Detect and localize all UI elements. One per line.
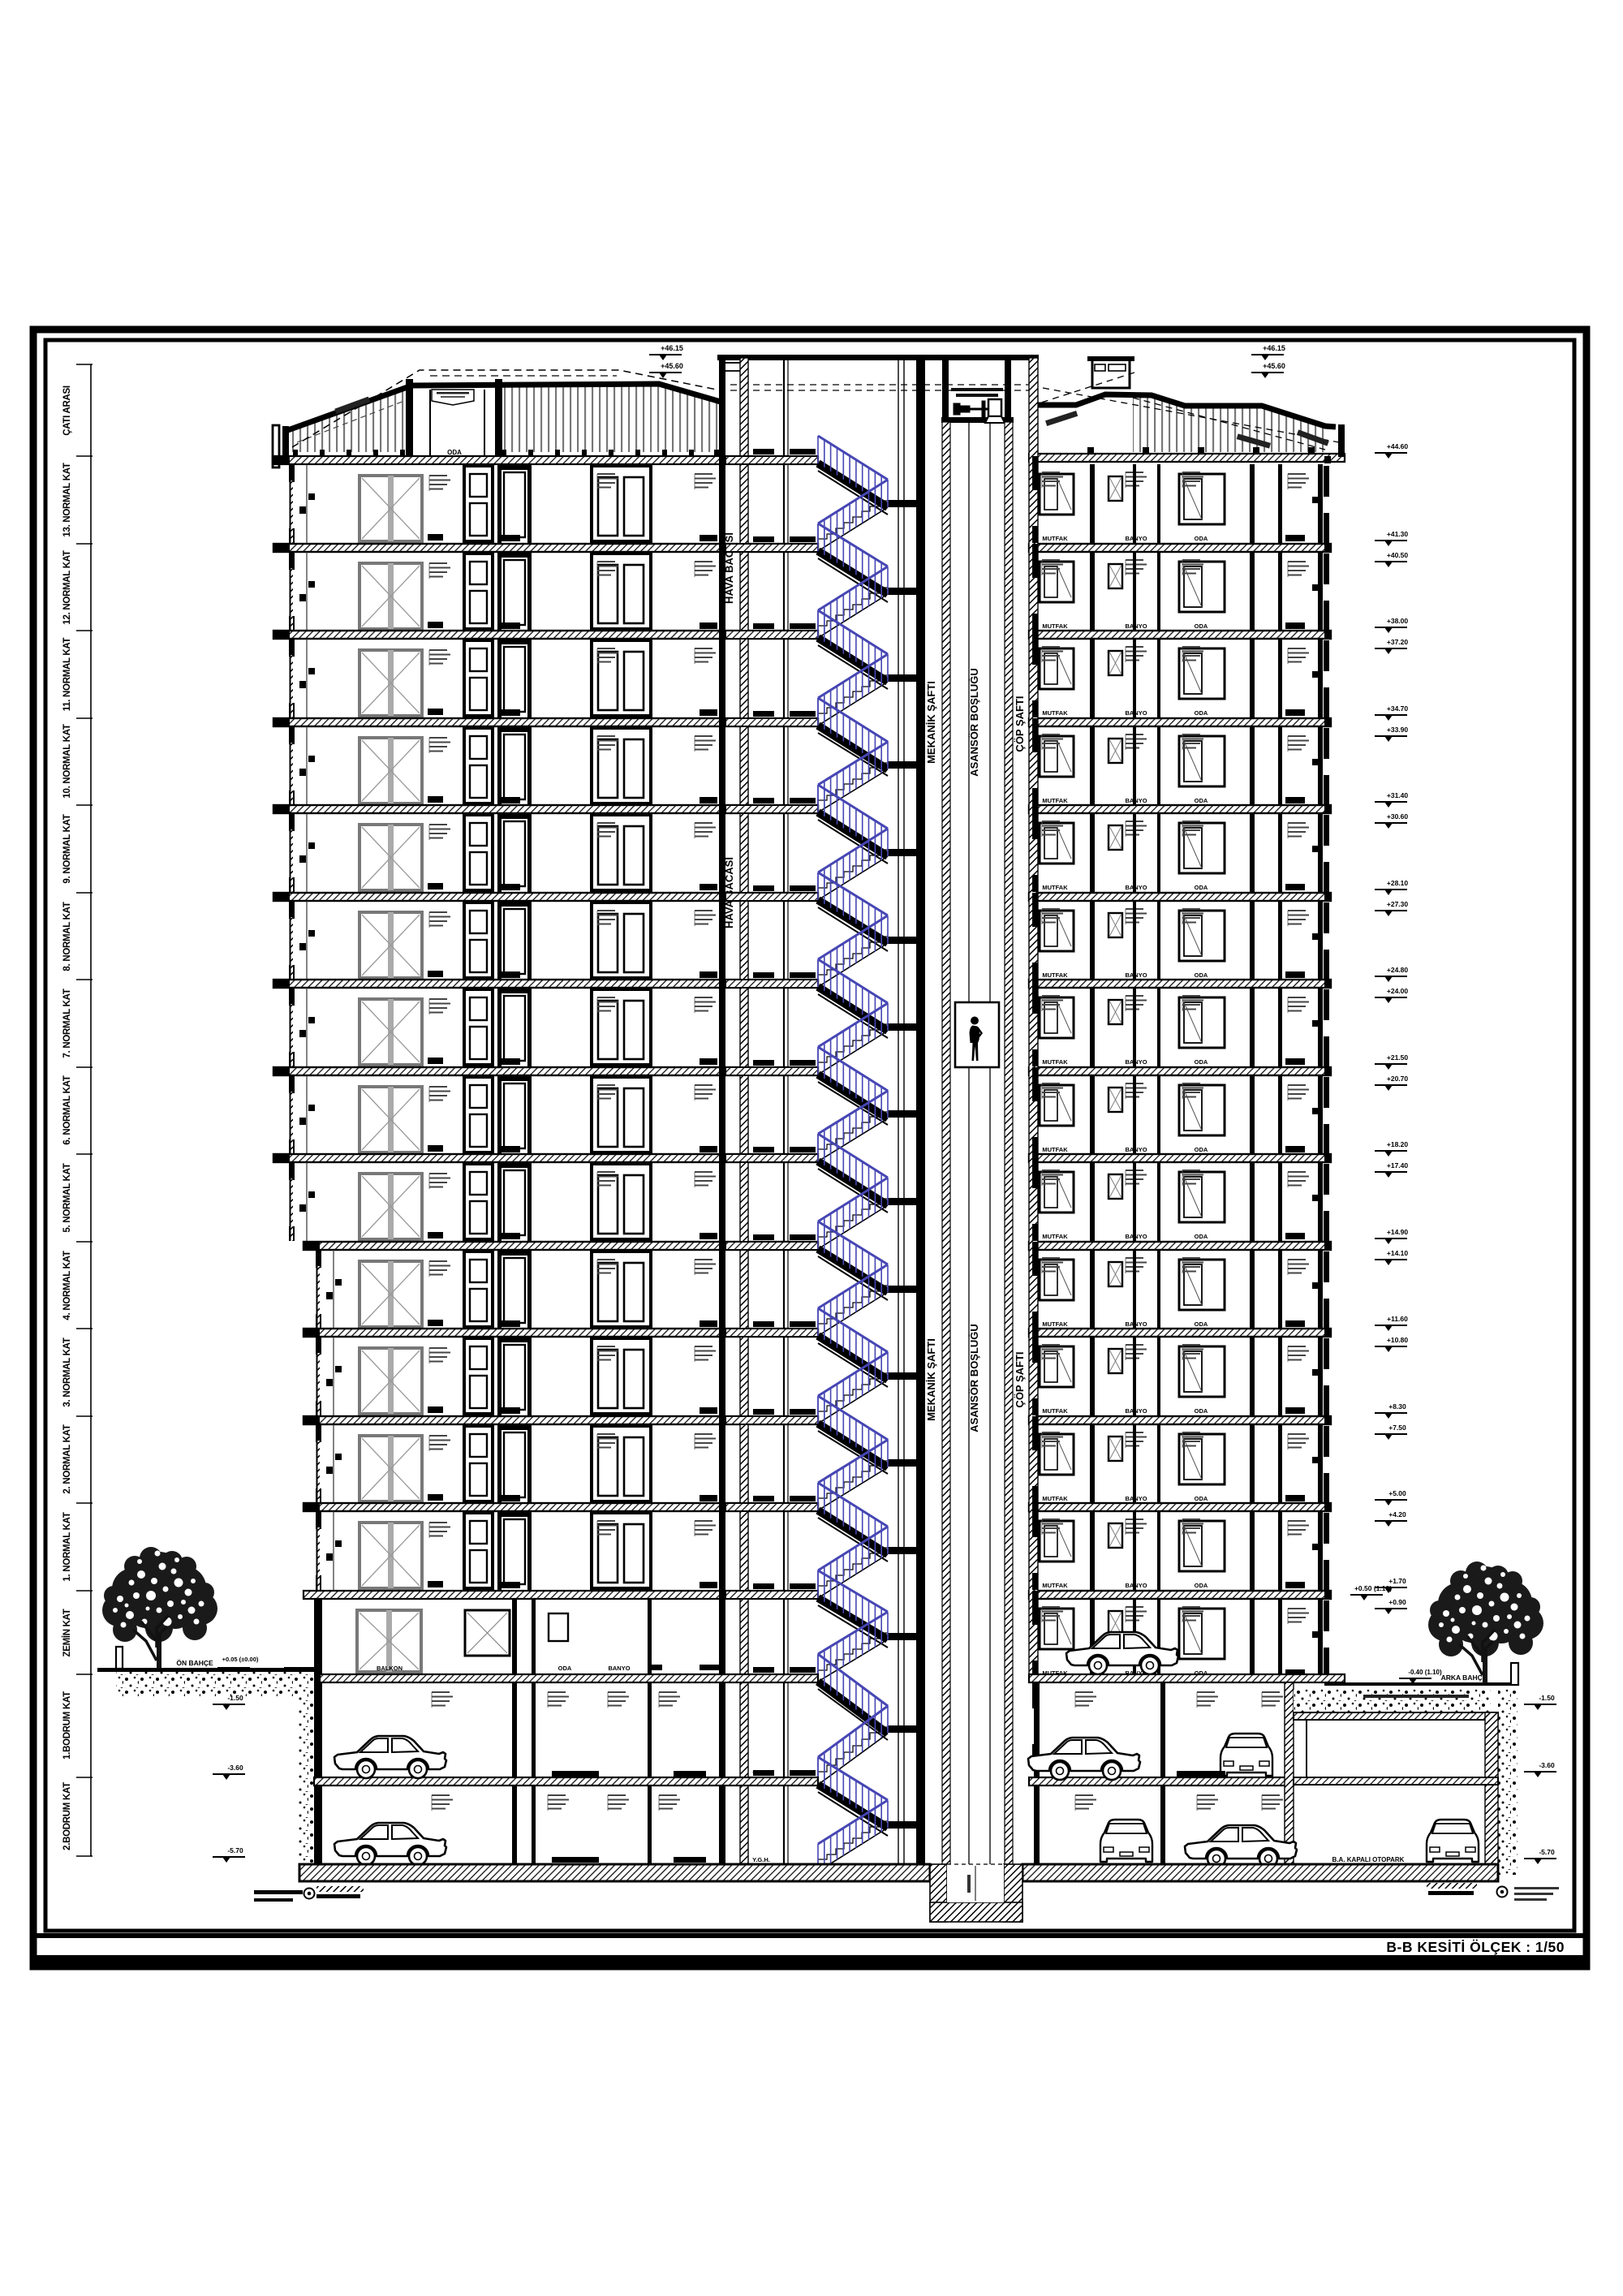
svg-text:+44.60: +44.60 xyxy=(1387,442,1409,450)
svg-text:+5.00: +5.00 xyxy=(1388,1489,1406,1497)
svg-text:+40.50: +40.50 xyxy=(1387,551,1409,559)
svg-text:+46.15: +46.15 xyxy=(1263,344,1285,352)
svg-text:4. NORMAL KAT: 4. NORMAL KAT xyxy=(62,1251,72,1320)
svg-text:+45.60: +45.60 xyxy=(661,362,683,370)
svg-text:+11.60: +11.60 xyxy=(1387,1315,1408,1323)
svg-text:+24.80: +24.80 xyxy=(1387,966,1409,974)
svg-text:13. NORMAL KAT: 13. NORMAL KAT xyxy=(62,463,72,536)
svg-text:ÇÖP ŞAFTI: ÇÖP ŞAFTI xyxy=(1014,696,1026,752)
svg-text:-5.70: -5.70 xyxy=(1539,1848,1555,1856)
svg-text:+7.50: +7.50 xyxy=(1388,1424,1406,1432)
svg-text:+37.20: +37.20 xyxy=(1387,638,1409,646)
svg-text:+14.10: +14.10 xyxy=(1387,1249,1409,1257)
svg-text:+41.30: +41.30 xyxy=(1387,530,1409,538)
svg-text:+27.30: +27.30 xyxy=(1387,900,1409,908)
svg-text:+33.90: +33.90 xyxy=(1387,726,1409,734)
svg-text:+17.40: +17.40 xyxy=(1387,1161,1409,1170)
svg-text:+30.60: +30.60 xyxy=(1387,812,1409,821)
svg-text:ÖN BAHÇE: ÖN BAHÇE xyxy=(176,1659,213,1667)
svg-text:+10.80: +10.80 xyxy=(1387,1336,1409,1344)
svg-text:-3.60: -3.60 xyxy=(227,1764,243,1772)
svg-text:-0.40 (1.10): -0.40 (1.10) xyxy=(1408,1669,1442,1676)
svg-text:+21.50: +21.50 xyxy=(1387,1053,1409,1062)
svg-text:ÇÖP ŞAFTI: ÇÖP ŞAFTI xyxy=(1014,1351,1026,1407)
svg-text:+14.90: +14.90 xyxy=(1387,1228,1409,1236)
svg-text:+0.90: +0.90 xyxy=(1388,1598,1406,1606)
svg-text:B.A. KAPALI OTOPARK: B.A. KAPALI OTOPARK xyxy=(1332,1856,1405,1863)
svg-text:Y.G.H.: Y.G.H. xyxy=(752,1770,770,1777)
svg-text:+0.05 (±0.00): +0.05 (±0.00) xyxy=(222,1656,259,1663)
svg-text:MEKANİK ŞAFTI: MEKANİK ŞAFTI xyxy=(925,1338,937,1421)
svg-text:+28.10: +28.10 xyxy=(1387,879,1409,887)
svg-text:10. NORMAL KAT: 10. NORMAL KAT xyxy=(62,724,72,798)
svg-text:ZEMİN KAT: ZEMİN KAT xyxy=(62,1609,72,1656)
svg-text:+24.00: +24.00 xyxy=(1387,987,1409,995)
svg-text:ODA: ODA xyxy=(447,449,462,456)
svg-text:ARKA BAHÇE: ARKA BAHÇE xyxy=(1441,1674,1487,1682)
svg-text:9. NORMAL KAT: 9. NORMAL KAT xyxy=(62,814,72,883)
svg-text:BANYO: BANYO xyxy=(608,1665,630,1672)
svg-text:-3.60: -3.60 xyxy=(1539,1761,1555,1769)
svg-text:+8.30: +8.30 xyxy=(1388,1402,1406,1411)
svg-text:+46.15: +46.15 xyxy=(661,344,683,352)
svg-text:+4.20: +4.20 xyxy=(1388,1510,1406,1518)
svg-text:7. NORMAL KAT: 7. NORMAL KAT xyxy=(62,989,72,1058)
svg-text:BALKON: BALKON xyxy=(377,1665,403,1672)
svg-text:+20.70: +20.70 xyxy=(1387,1075,1409,1083)
svg-text:ÇATI ARASI: ÇATI ARASI xyxy=(62,386,72,436)
svg-text:+45.60: +45.60 xyxy=(1263,362,1285,370)
svg-text:+31.40: +31.40 xyxy=(1387,791,1409,799)
svg-text:-5.70: -5.70 xyxy=(227,1846,243,1854)
svg-text:+34.70: +34.70 xyxy=(1387,704,1409,713)
svg-text:B-B KESİTİ ÖLÇEK : 1/50: B-B KESİTİ ÖLÇEK : 1/50 xyxy=(1386,1939,1565,1955)
svg-text:MEKANİK ŞAFTI: MEKANİK ŞAFTI xyxy=(925,681,937,764)
svg-text:Y.G.H.: Y.G.H. xyxy=(752,1856,770,1863)
svg-text:ASANSÖR BOŞLUĞU: ASANSÖR BOŞLUĞU xyxy=(968,668,980,777)
svg-text:5. NORMAL KAT: 5. NORMAL KAT xyxy=(62,1163,72,1232)
svg-text:1. NORMAL KAT: 1. NORMAL KAT xyxy=(62,1512,72,1581)
svg-text:+18.20: +18.20 xyxy=(1387,1140,1409,1148)
svg-text:11. NORMAL KAT: 11. NORMAL KAT xyxy=(62,637,72,711)
svg-text:-1.50: -1.50 xyxy=(1539,1694,1555,1702)
svg-text:2.BODRUM KAT: 2.BODRUM KAT xyxy=(62,1782,72,1850)
svg-text:12. NORMAL KAT: 12. NORMAL KAT xyxy=(62,550,72,624)
svg-text:+1.70: +1.70 xyxy=(1388,1577,1406,1585)
svg-text:6. NORMAL KAT: 6. NORMAL KAT xyxy=(62,1075,72,1144)
svg-text:ODA: ODA xyxy=(558,1665,572,1672)
svg-text:-1.50: -1.50 xyxy=(227,1694,243,1702)
svg-text:8. NORMAL KAT: 8. NORMAL KAT xyxy=(62,902,72,971)
svg-text:2. NORMAL KAT: 2. NORMAL KAT xyxy=(62,1424,72,1493)
svg-text:1.BODRUM KAT: 1.BODRUM KAT xyxy=(62,1691,72,1760)
svg-text:ASANSÖR BOŞLUĞU: ASANSÖR BOŞLUĞU xyxy=(968,1324,980,1432)
svg-text:+38.00: +38.00 xyxy=(1387,617,1409,625)
svg-text:3. NORMAL KAT: 3. NORMAL KAT xyxy=(62,1338,72,1406)
